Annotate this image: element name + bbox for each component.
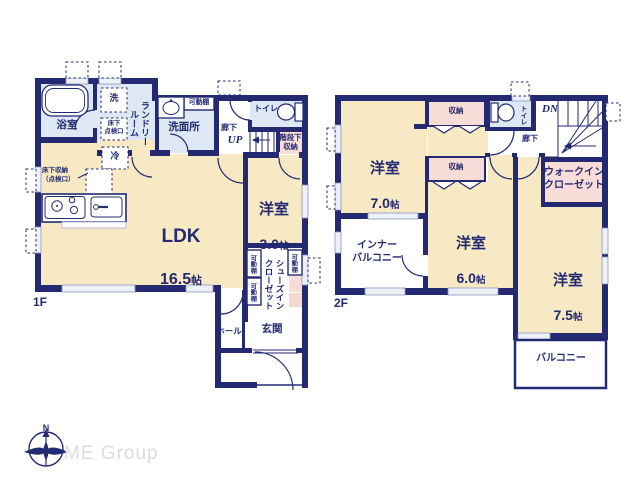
- room-label-genkan: 玄関: [252, 323, 292, 335]
- label-movable-shelf-washroom: 可動棚: [184, 99, 214, 107]
- label-underfloor-hatch: 床下 点検口: [101, 120, 127, 136]
- room-label-laundry: ランドリー ルーム: [128, 92, 150, 154]
- label-movable-shelf-sic-2: 可動棚: [249, 280, 256, 304]
- western75-name: 洋室: [536, 272, 600, 290]
- floor-label-2f: 2F: [334, 296, 348, 310]
- label-movable-shelf-sic-1: 可動棚: [249, 252, 256, 276]
- room-label-western75: 洋室 7.5帖: [536, 254, 600, 341]
- label-washer: 洗: [101, 93, 127, 104]
- toilet-1f-icon: [278, 103, 304, 121]
- western3-name: 洋室: [246, 201, 302, 219]
- western6-name: 洋室: [439, 235, 503, 253]
- kitchen-sink-icon: [91, 197, 122, 217]
- room-label-inner-balcony: インナー バルコニー: [344, 240, 410, 265]
- label-corridor-2f: 廊下: [518, 134, 542, 143]
- room-label-toilet-2f: トイレ: [518, 102, 526, 128]
- bathtub-icon: [42, 85, 88, 116]
- washbasin-icon: [158, 97, 184, 118]
- western7-size: 7.0帖: [353, 195, 417, 212]
- room-label-western7: 洋室 7.0帖: [353, 142, 417, 229]
- stove-icon: [45, 197, 85, 219]
- room-label-ldk: LDK 16.5帖: [136, 204, 226, 313]
- floorplan-drawing: [0, 0, 640, 480]
- western7-name: 洋室: [353, 160, 417, 178]
- room-label-washroom: 洗面所: [160, 121, 208, 133]
- label-fridge: 冷: [102, 151, 128, 162]
- entrance-door-panel: [253, 350, 298, 353]
- room-label-bath: 浴室: [48, 119, 86, 131]
- label-storage-1: 収納: [439, 107, 473, 116]
- floorplan-page: 浴室 洗 ランドリー ルーム 床下 点検口 可動棚 洗面所 廊下 UP トイレ …: [0, 0, 640, 480]
- toilet-2f-icon: [491, 103, 514, 122]
- room-label-western6: 洋室 6.0帖: [439, 217, 503, 304]
- room-label-wic: ウォークイン クローゼット: [542, 167, 606, 192]
- room-label-balcony: バルコニー: [526, 353, 596, 365]
- compass-north-label: N: [41, 423, 51, 434]
- ldk-size: 16.5帖: [136, 271, 226, 290]
- label-floor-storage: 床下収納 （点検口）: [42, 167, 88, 184]
- brand-logo-text: ME Group: [64, 443, 159, 465]
- ldk-name: LDK: [136, 226, 226, 248]
- label-storage-2: 収納: [439, 163, 473, 172]
- room-label-shoes-in-closet: シューズイン クローゼット: [263, 249, 285, 319]
- label-up: UP: [224, 134, 246, 147]
- floor-label-1f: 1F: [33, 295, 47, 309]
- western75-size: 7.5帖: [536, 307, 600, 324]
- room-label-hall: ホール: [213, 326, 245, 336]
- label-under-stairs-storage: 階段下 収納: [275, 133, 306, 151]
- label-corridor-1f: 廊下: [217, 123, 241, 132]
- compass-icon: [24, 429, 68, 466]
- label-movable-shelf-sic-3: 可動棚: [290, 252, 297, 274]
- western6-size: 6.0帖: [439, 270, 503, 287]
- room-label-toilet-1f: トイレ: [252, 104, 280, 113]
- label-dn: DN: [538, 103, 562, 116]
